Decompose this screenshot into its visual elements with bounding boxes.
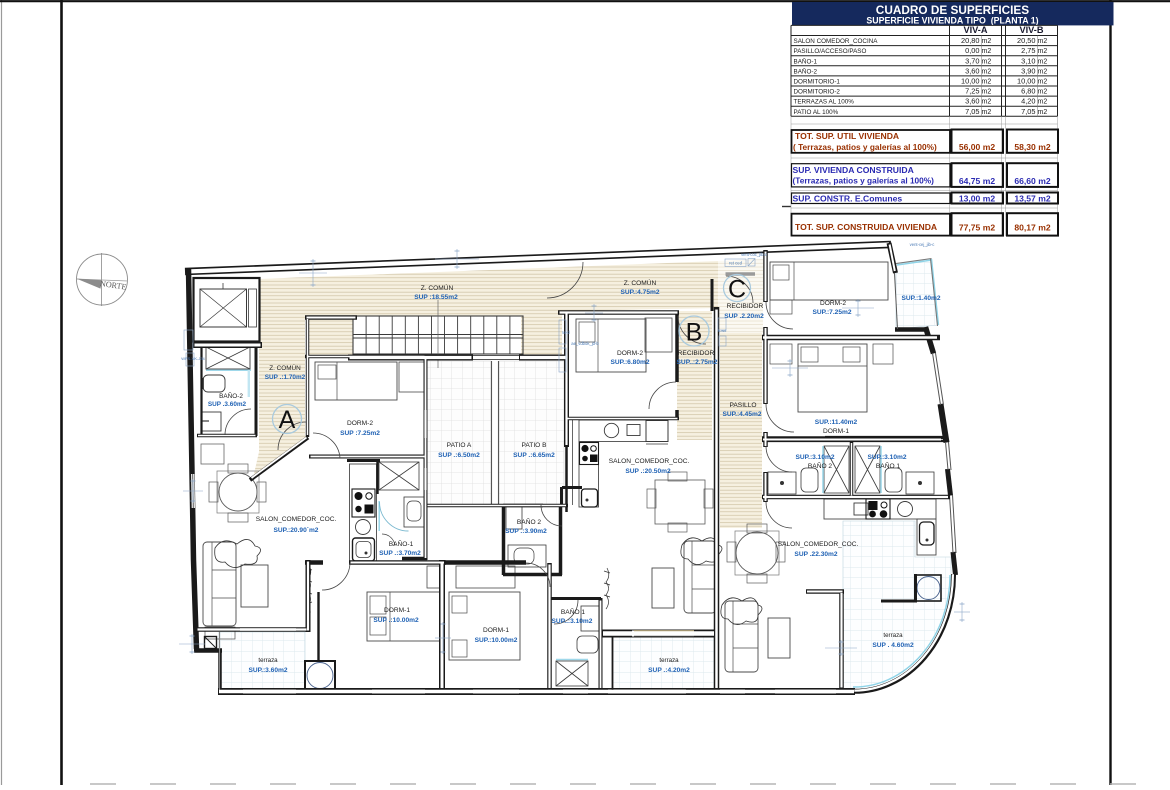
svg-text:m2: m2 bbox=[982, 89, 992, 96]
svg-text:SUP. VIVIENDA CONSTRUIDA: SUP. VIVIENDA CONSTRUIDA bbox=[793, 165, 914, 175]
svg-text:terraza: terraza bbox=[659, 657, 679, 664]
svg-text:SUP .2.20m2: SUP .2.20m2 bbox=[724, 313, 764, 320]
svg-text:80,17 m2: 80,17 m2 bbox=[1014, 222, 1051, 232]
svg-text:m2: m2 bbox=[1038, 58, 1048, 65]
svg-text:BAÑO 2: BAÑO 2 bbox=[808, 461, 833, 470]
svg-text:SUP .3.60m2: SUP .3.60m2 bbox=[208, 401, 247, 408]
svg-text:BAÑO-2: BAÑO-2 bbox=[794, 66, 818, 75]
svg-text:SUP.:6.80m2: SUP.:6.80m2 bbox=[610, 359, 649, 366]
svg-text:0,00: 0,00 bbox=[965, 46, 979, 55]
svg-text:BAÑO-1: BAÑO-1 bbox=[389, 539, 414, 548]
svg-text:PASILLO/ACCESO/PASO: PASILLO/ACCESO/PASO bbox=[794, 48, 867, 55]
svg-text:VIV-A: VIV-A bbox=[964, 25, 988, 35]
svg-text:SUP.:10.00m2: SUP.:10.00m2 bbox=[475, 637, 518, 644]
svg-text:SUP.:3.10m2: SUP.:3.10m2 bbox=[795, 454, 834, 461]
svg-text:m2: m2 bbox=[982, 79, 992, 86]
svg-text:DORM-2: DORM-2 bbox=[617, 350, 643, 357]
svg-text:Z. COMÚN: Z. COMÚN bbox=[421, 283, 454, 292]
svg-text:7,05: 7,05 bbox=[1021, 107, 1035, 116]
svg-text:3,90: 3,90 bbox=[1021, 66, 1035, 75]
svg-text:terraza: terraza bbox=[258, 657, 278, 664]
svg-text:DORM-1: DORM-1 bbox=[384, 607, 410, 614]
svg-text:DORM-1: DORM-1 bbox=[823, 428, 849, 435]
svg-text:DORMITORIO-2: DORMITORIO-2 bbox=[794, 89, 841, 96]
svg-text:64,75 m2: 64,75 m2 bbox=[959, 176, 996, 186]
svg-text:BAÑO 1: BAÑO 1 bbox=[561, 607, 586, 616]
svg-text:SUP..:2.75m2: SUP..:2.75m2 bbox=[677, 359, 718, 366]
svg-text:m2: m2 bbox=[982, 48, 992, 55]
svg-text:ae_vdbok_jd-b: ae_vdbok_jd-b bbox=[571, 341, 599, 346]
svg-text:3,70: 3,70 bbox=[965, 56, 979, 65]
svg-text:20,50: 20,50 bbox=[1017, 36, 1036, 45]
svg-text:7,05: 7,05 bbox=[965, 107, 979, 116]
svg-text:SALON_COMEDOR_COC.: SALON_COMEDOR_COC. bbox=[256, 516, 337, 523]
svg-text:SUPERFICIE VIVIENDA TIPO (PLA: SUPERFICIE VIVIENDA TIPO (PLANTA 1) bbox=[866, 15, 1038, 25]
svg-text:13,57 m2: 13,57 m2 bbox=[1014, 194, 1051, 204]
svg-text:SUP.:7.25m2: SUP.:7.25m2 bbox=[812, 309, 851, 316]
svg-text:2,75: 2,75 bbox=[1021, 46, 1035, 55]
svg-text:SALON COMEDOR_COCINA: SALON COMEDOR_COCINA bbox=[794, 38, 879, 45]
svg-text:m2: m2 bbox=[1038, 79, 1048, 86]
svg-text:SALON_COMEDOR_COC.: SALON_COMEDOR_COC. bbox=[778, 541, 859, 548]
svg-text:DORM-2: DORM-2 bbox=[820, 300, 846, 307]
svg-text:SUP .:3.70m2: SUP .:3.70m2 bbox=[379, 550, 421, 557]
svg-text:77,75 m2: 77,75 m2 bbox=[959, 222, 996, 232]
svg-text:(Terrazas, patios y galerías a: (Terrazas, patios y galerías al 100%) bbox=[793, 176, 935, 186]
svg-text:7,25: 7,25 bbox=[965, 87, 979, 96]
svg-text:56,00 m2: 56,00 m2 bbox=[959, 142, 996, 152]
svg-text:PATIO B: PATIO B bbox=[521, 442, 547, 449]
svg-text:SUP.:3.60m2: SUP.:3.60m2 bbox=[248, 667, 287, 674]
svg-text:RECIBIDOR: RECIBIDOR bbox=[727, 303, 764, 310]
svg-text:3,60: 3,60 bbox=[965, 97, 979, 106]
svg-text:SUP :7.25m2: SUP :7.25m2 bbox=[340, 430, 380, 437]
svg-text:DORM-1: DORM-1 bbox=[483, 627, 509, 634]
svg-text:Z. COMÚN: Z. COMÚN bbox=[269, 363, 301, 372]
svg-text:SUP :18.55m2: SUP :18.55m2 bbox=[414, 294, 458, 301]
svg-text:vent-coc_jib-c: vent-coc_jib-c bbox=[741, 252, 767, 257]
svg-text:SUP .:20.50m2: SUP .:20.50m2 bbox=[625, 468, 671, 475]
svg-text:SUP.:1.40m2: SUP.:1.40m2 bbox=[901, 295, 940, 302]
svg-text:58,30 m2: 58,30 m2 bbox=[1014, 142, 1051, 152]
svg-text:10,00: 10,00 bbox=[1017, 77, 1036, 86]
svg-text:SUP.:4.75m2: SUP.:4.75m2 bbox=[620, 289, 659, 296]
svg-text:m2: m2 bbox=[1038, 89, 1048, 96]
svg-text:C: C bbox=[728, 276, 746, 304]
svg-text:ret ced: ret ced bbox=[729, 261, 742, 266]
svg-text:6,80: 6,80 bbox=[1021, 87, 1035, 96]
svg-text:te-d: te-d bbox=[562, 330, 570, 335]
svg-text:DORMITORIO-1: DORMITORIO-1 bbox=[794, 79, 841, 86]
svg-text:terraza: terraza bbox=[883, 632, 903, 639]
svg-text:B: B bbox=[686, 319, 703, 347]
svg-text:SUP. CONSTR. E.Comunes: SUP. CONSTR. E.Comunes bbox=[793, 193, 903, 203]
svg-text:PASILLO: PASILLO bbox=[730, 402, 757, 409]
svg-text:SUP .:4.20m2: SUP .:4.20m2 bbox=[648, 667, 690, 674]
svg-text:m2: m2 bbox=[982, 38, 992, 45]
svg-text:SUP.:11.40m2: SUP.:11.40m2 bbox=[815, 419, 858, 426]
svg-text:13,00 m2: 13,00 m2 bbox=[959, 194, 996, 204]
svg-text:m2: m2 bbox=[982, 58, 992, 65]
svg-text:TERRAZAS AL 100%: TERRAZAS AL 100% bbox=[794, 99, 855, 106]
svg-text:m2: m2 bbox=[1038, 68, 1048, 75]
svg-text:BAÑO 1: BAÑO 1 bbox=[876, 461, 901, 470]
svg-text:SUP..:3.10m2: SUP..:3.10m2 bbox=[552, 618, 593, 625]
svg-text:SUP .:6.50m2: SUP .:6.50m2 bbox=[438, 452, 480, 459]
svg-text:SUP.:4.45m2: SUP.:4.45m2 bbox=[722, 411, 761, 418]
svg-text:SUP.:20.90´m2: SUP.:20.90´m2 bbox=[274, 527, 319, 534]
svg-text:m2: m2 bbox=[982, 99, 992, 106]
svg-text:10,00: 10,00 bbox=[961, 77, 980, 86]
svg-text:SUP .:3.90m2: SUP .:3.90m2 bbox=[505, 528, 547, 535]
svg-text:SUP .:10.00m2: SUP .:10.00m2 bbox=[373, 617, 419, 624]
svg-text:3,10: 3,10 bbox=[1021, 56, 1035, 65]
svg-text:m2: m2 bbox=[1038, 38, 1048, 45]
svg-text:m2: m2 bbox=[1038, 48, 1048, 55]
svg-text:vent-cej_jib-c: vent-cej_jib-c bbox=[910, 242, 935, 247]
svg-text:4,20: 4,20 bbox=[1021, 97, 1035, 106]
svg-text:Z. COMÚN: Z. COMÚN bbox=[624, 278, 657, 287]
svg-text:SUP.:3.10m2: SUP.:3.10m2 bbox=[867, 454, 906, 461]
svg-text:m2: m2 bbox=[1038, 99, 1048, 106]
svg-text:3,60: 3,60 bbox=[965, 66, 979, 75]
svg-text:BAÑO-2: BAÑO-2 bbox=[219, 391, 243, 400]
svg-text:PATIO AL 100%: PATIO AL 100% bbox=[794, 109, 839, 116]
svg-text:BAÑO-1: BAÑO-1 bbox=[794, 56, 818, 65]
svg-text:a-wd: a-wd bbox=[718, 328, 727, 333]
svg-text:BAÑO 2: BAÑO 2 bbox=[517, 517, 542, 526]
svg-text:SUP . 4.60m2: SUP . 4.60m2 bbox=[872, 642, 914, 649]
svg-text:SUP .:1.70m2: SUP .:1.70m2 bbox=[265, 374, 306, 381]
svg-text:SUP .22.30m2: SUP .22.30m2 bbox=[794, 551, 837, 558]
svg-text:PATIO A: PATIO A bbox=[447, 442, 472, 449]
svg-text:( Terrazas, patios y galerías: ( Terrazas, patios y galerías al 100%) bbox=[793, 142, 937, 152]
svg-text:m2: m2 bbox=[982, 109, 992, 116]
svg-text:66,60 m2: 66,60 m2 bbox=[1014, 176, 1051, 186]
svg-text:SALON_COMEDOR_COC.: SALON_COMEDOR_COC. bbox=[609, 458, 690, 465]
svg-text:RECIBIDOR: RECIBIDOR bbox=[678, 350, 715, 357]
svg-text:m2: m2 bbox=[1038, 109, 1048, 116]
svg-text:20,80: 20,80 bbox=[961, 36, 980, 45]
svg-text:VIV-B: VIV-B bbox=[1020, 25, 1044, 35]
svg-text:TOT. SUP. CONSTRUIDA VIVIENDA: TOT. SUP. CONSTRUIDA VIVIENDA bbox=[795, 222, 937, 232]
svg-text:TOT. SUP. UTIL VIVIENDA: TOT. SUP. UTIL VIVIENDA bbox=[795, 131, 899, 141]
svg-text:DORM-2: DORM-2 bbox=[347, 420, 373, 427]
svg-text:m2: m2 bbox=[982, 68, 992, 75]
svg-text:A: A bbox=[279, 406, 296, 434]
svg-text:SUP .:6.65m2: SUP .:6.65m2 bbox=[513, 452, 555, 459]
svg-text:WPS-VK-J34: WPS-VK-J34 bbox=[181, 356, 205, 361]
